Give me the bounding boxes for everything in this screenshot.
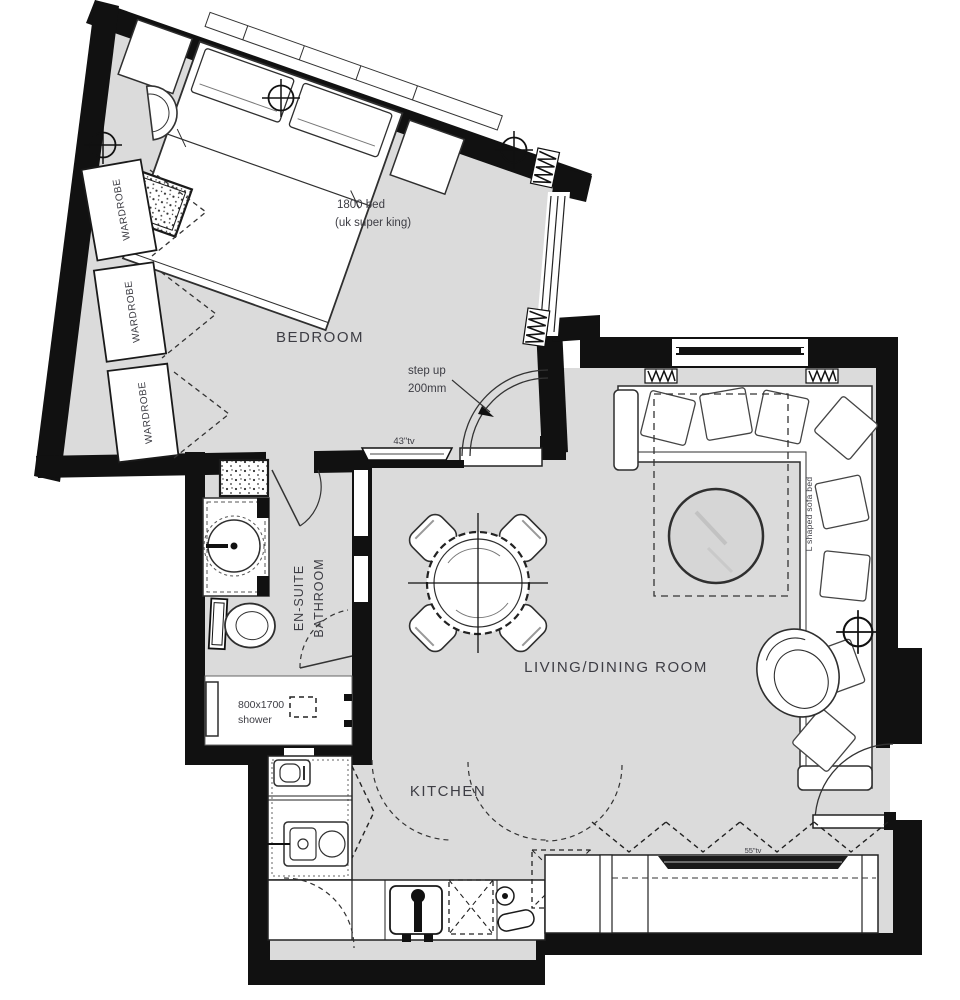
bedroom-label: BEDROOM <box>276 329 364 346</box>
kitchen-appliance-top <box>274 760 310 786</box>
step-label-line1: step up <box>408 365 446 377</box>
shower-label-line2: shower <box>238 714 272 726</box>
entrance-door-leaf <box>813 815 893 828</box>
bath-wall-niche-2 <box>354 556 368 602</box>
floor-plan-drawing: WARDROBE WARDROBE WARDROBE <box>0 0 960 1000</box>
round-rug <box>669 489 763 583</box>
dining-set <box>405 510 550 655</box>
radiator-bedroom-window-bottom <box>523 308 550 347</box>
wall-below-entrance <box>893 818 922 952</box>
living-window <box>672 339 808 366</box>
radiator-living-left <box>645 369 677 383</box>
bathroom-shelf <box>220 460 268 496</box>
bathroom-door-opening <box>266 450 314 474</box>
radiator-living-right <box>806 369 838 383</box>
vanity-unit <box>203 498 269 596</box>
bath-wall-niche-1 <box>354 470 368 536</box>
wall-living-right-jog <box>876 648 922 748</box>
wall-kitchen-left <box>248 755 270 965</box>
entrance-door-opening <box>890 744 924 820</box>
shower-screen <box>206 682 218 736</box>
kitchen-hob-unit <box>390 886 442 942</box>
wardrobe-2: WARDROBE <box>94 262 166 361</box>
floor-plan: WARDROBE WARDROBE WARDROBE <box>0 0 960 1000</box>
wall-living-right-upper <box>876 368 898 655</box>
stepup-door-hinge <box>540 436 566 460</box>
wardrobe-3: WARDROBE <box>108 364 179 463</box>
step-label-line2: 200mm <box>408 383 446 395</box>
bed-label-line2: (uk super king) <box>335 217 411 229</box>
ensuite-label-line1: EN-SUITE <box>292 565 306 631</box>
wall-bath-left <box>185 452 205 765</box>
bedroom-tv-label: 43"tv <box>393 436 415 447</box>
sofa-label: L shaped sofa bed <box>804 477 814 552</box>
shower-label-line1: 800x1700 <box>238 699 284 711</box>
stepup-sill <box>460 448 542 466</box>
bed-label-line1: 1800 bed <box>337 199 385 211</box>
kitchen-label: KITCHEN <box>410 783 486 800</box>
sofa-arm-left <box>614 390 638 470</box>
wall-bottom-left <box>248 960 545 985</box>
living-label: LIVING/DINING ROOM <box>524 659 708 676</box>
wall-bottom-right <box>540 933 922 955</box>
living-tv-label: 55"tv <box>745 846 762 855</box>
ensuite-label-line2: BATHROOM <box>312 558 326 637</box>
